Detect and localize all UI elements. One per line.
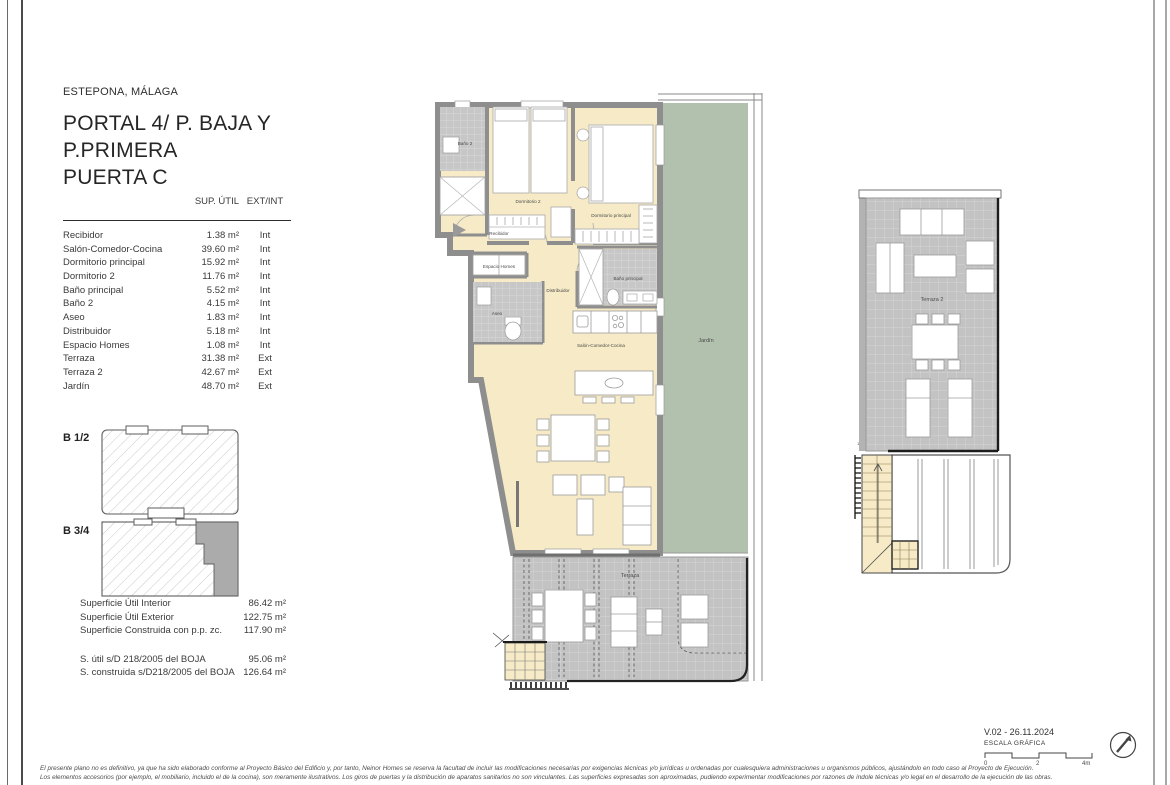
table-row: Terraza31.38 m²Ext xyxy=(63,352,291,366)
room-aseo: Aseo xyxy=(473,282,542,342)
table-row: Espacio Homes1.08 m²Int xyxy=(63,339,291,353)
bano2-label: Baño 2 xyxy=(458,141,473,146)
garden-area: Jardín xyxy=(660,103,748,553)
table-row: Aseo1.83 m²Int xyxy=(63,311,291,325)
north-compass-icon xyxy=(1108,730,1138,760)
summary-row: Superficie Útil Exterior122.75 m² xyxy=(80,611,286,625)
terraza2-left-wall xyxy=(859,197,866,451)
table-row: Baño 24.15 m²Int xyxy=(63,297,291,311)
version-text: V.02 - 26.11.2024 xyxy=(984,727,1054,737)
terraza2-top-wall xyxy=(859,190,1001,198)
kitchen-counter xyxy=(573,311,657,333)
disclaimer-line-1: El presente plano no es definitivo, ya q… xyxy=(40,765,1135,772)
key-plan-b34 xyxy=(96,518,246,600)
dormitorio2-label: Dormitorio 2 xyxy=(515,199,540,204)
header-sup-util: SUP. ÚTIL xyxy=(175,196,239,211)
table-row: Salón-Comedor-Cocina39.60 m²Int xyxy=(63,243,291,257)
terrace-label: Terraza xyxy=(621,573,640,579)
boja-block: S. útil s/D 218/2005 del BOJA95.06 m² S.… xyxy=(80,653,286,680)
room-bano-principal: Baño principal xyxy=(579,249,657,305)
areas-table-rows: Recibidor1.38 m²Int Salón-Comedor-Cocina… xyxy=(63,229,291,393)
bano-principal-label: Baño principal xyxy=(613,276,642,281)
areas-table-header: SUP. ÚTIL EXT/INT xyxy=(63,196,291,221)
terrace-area: Terraza xyxy=(513,557,748,681)
scale-label: ESCALA GRÁFICA xyxy=(984,740,1046,747)
section-hatch-strip xyxy=(509,682,569,689)
summary-block: Superficie Útil Interior86.42 m² Superfi… xyxy=(80,597,286,680)
floor-plan-page: { "doc": { "location": "ESTEPONA, MÁLAGA… xyxy=(0,0,1170,785)
table-row: Terraza 242.67 m²Ext xyxy=(63,366,291,380)
summary-row: Superficie Útil Interior86.42 m² xyxy=(80,597,286,611)
title-line-2: P.PRIMERA xyxy=(63,137,271,164)
page-frame-right-outer xyxy=(1165,0,1167,785)
page-frame-left-outer xyxy=(7,0,8,785)
salon-label: Salón-Comedor-Cocina xyxy=(577,343,625,348)
room-espacio-homes: Espacio Homes xyxy=(473,255,525,275)
summary-row: S. útil s/D 218/2005 del BOJA95.06 m² xyxy=(80,653,286,667)
scale-bar: 0 2 4m xyxy=(984,748,1096,766)
summary-row: S. construida s/D218/2005 del BOJA126.64… xyxy=(80,666,286,680)
room-bano2: Baño 2 xyxy=(440,107,485,215)
location-text: ESTEPONA, MÁLAGA xyxy=(63,86,178,98)
hall-wardrobe xyxy=(575,229,639,244)
summary-row: Superficie Construida con p.p. zc.117.90… xyxy=(80,624,286,638)
title-line-1: PORTAL 4/ P. BAJA Y xyxy=(63,110,271,137)
table-row: Distribuidor5.18 m²Int xyxy=(63,325,291,339)
table-row: Dormitorio principal15.92 m²Int xyxy=(63,256,291,270)
table-row: Jardín48.70 m²Ext xyxy=(63,380,291,394)
key-plan-b12 xyxy=(96,424,246,522)
recibidor-label: Recibidor xyxy=(489,231,509,236)
terrace-furniture xyxy=(532,590,708,647)
table-row: Baño principal5.52 m²Int xyxy=(63,284,291,298)
terraza2-floor xyxy=(866,198,998,451)
page-frame-left-inner xyxy=(21,0,23,785)
garden-label: Jardín xyxy=(698,338,713,344)
distribuidor-label: Distribuidor xyxy=(546,288,570,293)
terraza2-plan: Terraza 2 1 xyxy=(848,183,1020,585)
table-row: Recibidor1.38 m²Int xyxy=(63,229,291,243)
terraza2-label: Terraza 2 xyxy=(921,297,944,303)
key-plan-b12-label: B 1/2 xyxy=(63,432,89,444)
aseo-label: Aseo xyxy=(492,311,503,316)
page-frame-right-inner xyxy=(1153,0,1155,785)
disclaimer-line-2: Los elementos accesorios (por ejemplo, e… xyxy=(40,774,1135,781)
key-plan-b34-label: B 3/4 xyxy=(63,525,89,537)
dormitorio-principal-label: Dormitorio principal xyxy=(591,213,631,218)
main-floor-plan: Jardín Terraza xyxy=(425,85,775,697)
table-row: Dormitorio 211.76 m²Int xyxy=(63,270,291,284)
espacio-homes-label: Espacio Homes xyxy=(483,264,516,269)
dining-set xyxy=(537,415,609,462)
title-line-3: PUERTA C xyxy=(63,164,271,191)
page-title: PORTAL 4/ P. BAJA Y P.PRIMERA PUERTA C xyxy=(63,110,271,191)
areas-table: SUP. ÚTIL EXT/INT Recibidor1.38 m²Int Sa… xyxy=(63,196,291,393)
header-ext-int: EXT/INT xyxy=(239,196,291,211)
